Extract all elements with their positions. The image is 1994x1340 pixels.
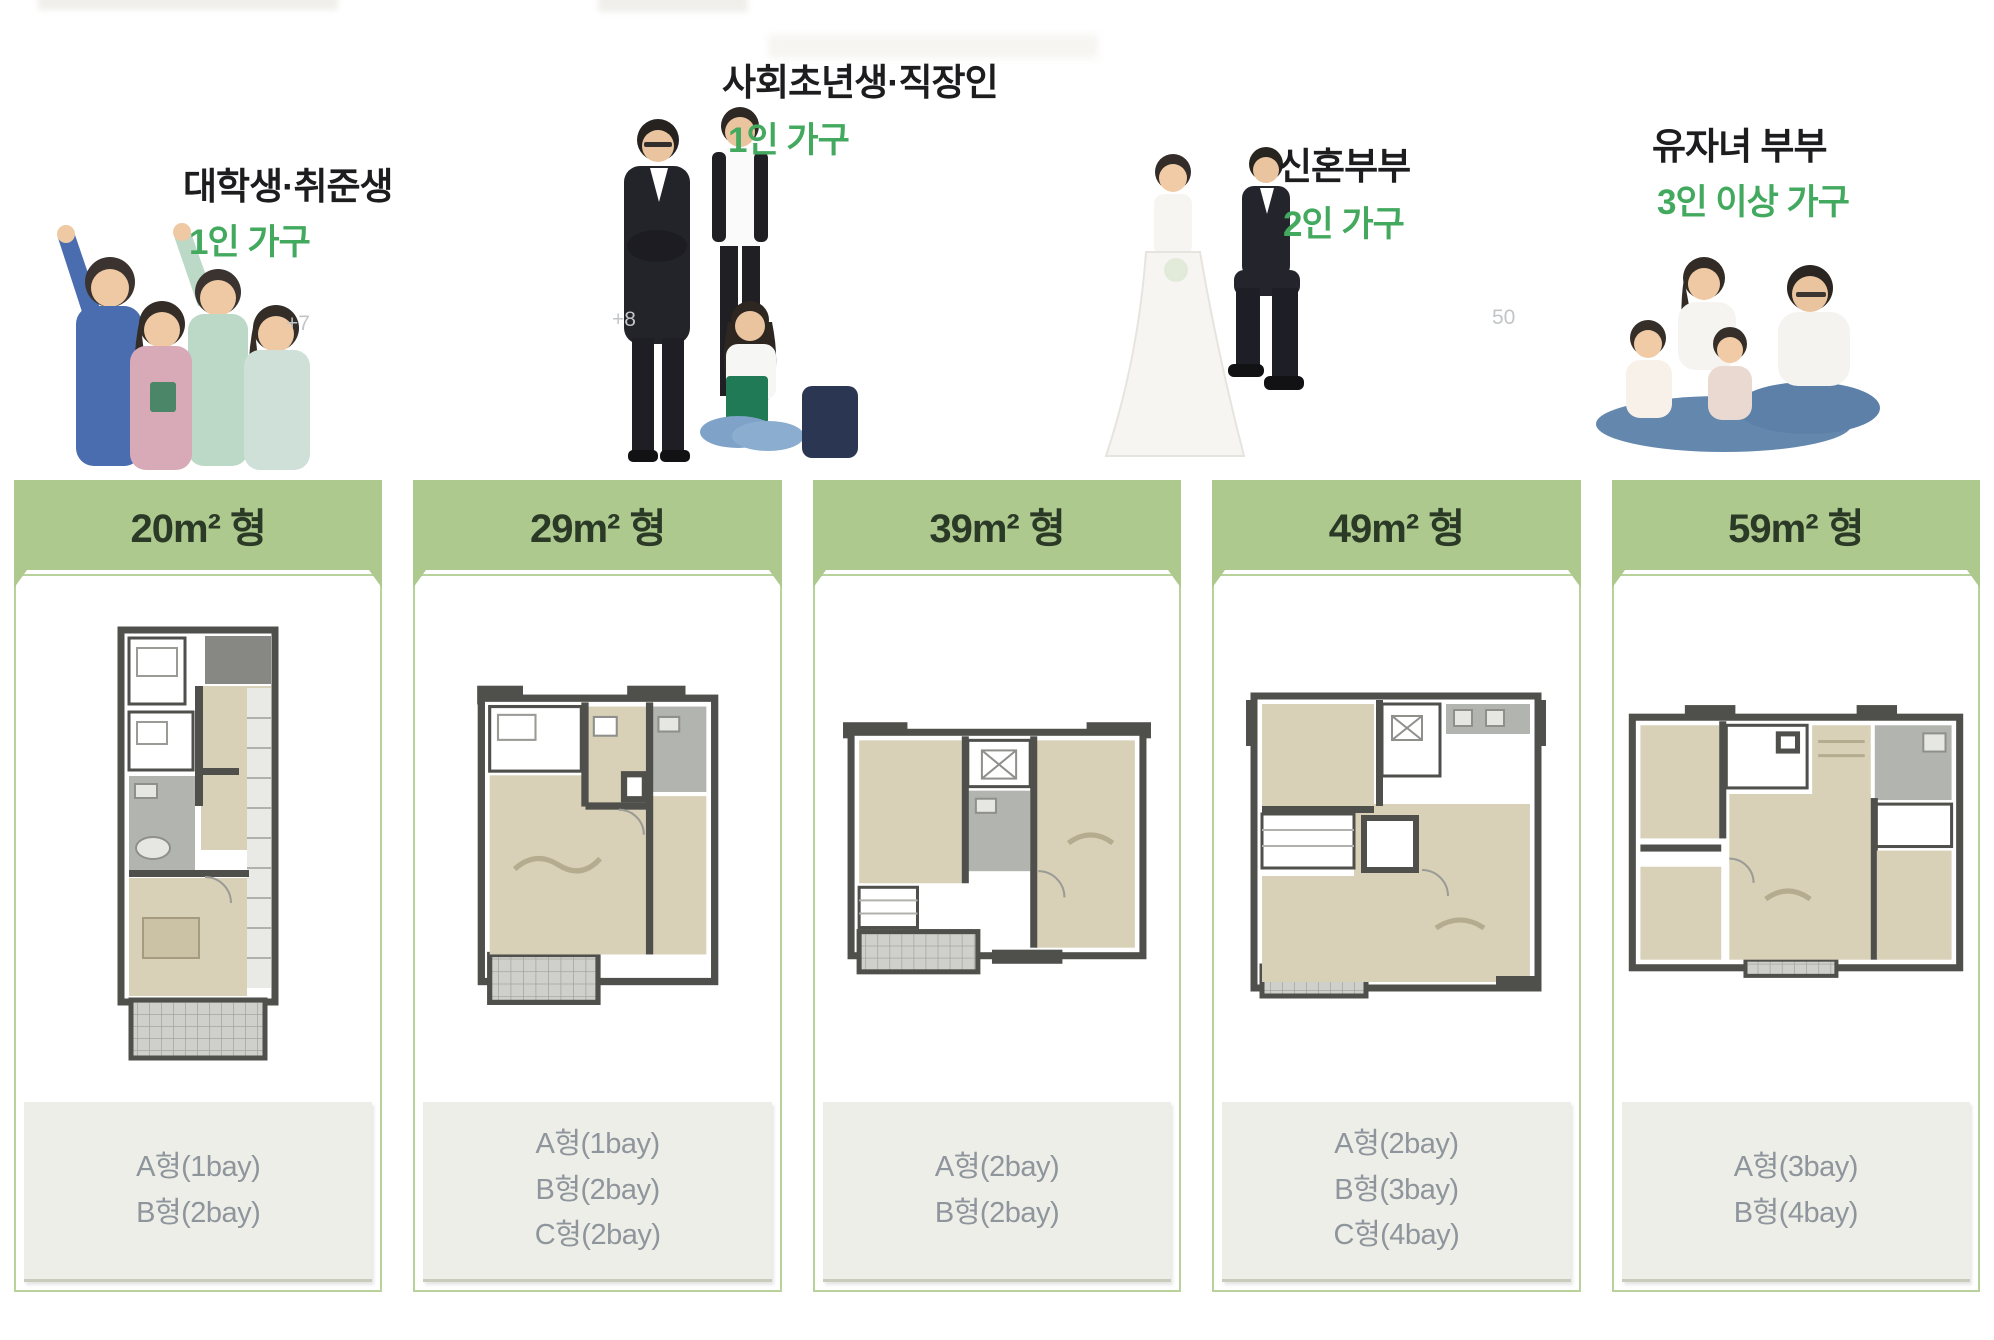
unit-type: B형(4bay)	[1734, 1191, 1858, 1237]
unit-size-label: 49m² 형	[1329, 496, 1464, 554]
unit-type: C형(4bay)	[1334, 1213, 1460, 1259]
family-photo-illustration	[1552, 242, 1892, 457]
unit-size-header: 49m² 형	[1212, 480, 1580, 570]
unit-type-list: A형(1bay) B형(2bay) C형(2bay)	[423, 1102, 771, 1282]
persona-household: 3인 이상 가구	[1657, 174, 1849, 225]
unit-panel: A형(2bay) B형(3bay) C형(4bay)	[1212, 574, 1580, 1292]
unit-size-label: 29m² 형	[530, 496, 665, 554]
unit-size-header: 59m² 형	[1612, 480, 1980, 570]
unit-type: B형(3bay)	[1334, 1168, 1458, 1214]
persona-household: 2인 가구	[1283, 196, 1404, 247]
persona-household: 1인 가구	[728, 112, 849, 163]
floor-plan-drawing	[473, 671, 723, 1015]
persona-name: 대학생·취준생	[183, 156, 393, 210]
unit-type-list: A형(2bay) B형(3bay) C형(4bay)	[1222, 1102, 1570, 1282]
floor-plan-59	[1622, 584, 1970, 1102]
unit-type: A형(2bay)	[935, 1145, 1059, 1191]
floor-plan-20	[24, 584, 372, 1102]
unit-panel: A형(3bay) B형(4bay)	[1612, 574, 1980, 1292]
unit-panel: A형(1bay) B형(2bay) C형(2bay)	[413, 574, 781, 1292]
unit-type: A형(2bay)	[1334, 1122, 1458, 1168]
unit-type: B형(2bay)	[935, 1191, 1059, 1237]
unit-size-header: 39m² 형	[813, 480, 1181, 570]
unit-size-header: 29m² 형	[413, 480, 781, 570]
unit-size-label: 59m² 형	[1728, 496, 1863, 554]
unit-type: A형(1bay)	[136, 1145, 260, 1191]
unit-column-29: 29m² 형	[413, 480, 781, 1292]
unit-type-list: A형(1bay) B형(2bay)	[24, 1102, 372, 1282]
cropped-text-remnant	[38, 0, 338, 10]
unit-type: B형(2bay)	[535, 1168, 659, 1214]
floor-plan-29	[423, 584, 771, 1102]
unit-type-list: A형(2bay) B형(2bay)	[823, 1102, 1171, 1282]
photo-watermark: +8	[612, 308, 636, 332]
unit-column-20: 20m² 형	[14, 480, 382, 1292]
unit-columns: 20m² 형	[0, 480, 1994, 1292]
unit-type: A형(1bay)	[535, 1122, 659, 1168]
infographic-unit-types: 대학생·취준생 1인 가구 +7	[0, 0, 1994, 1340]
photo-watermark: 50	[1492, 306, 1515, 330]
persona-name: 유자녀 부부	[1652, 116, 1826, 170]
unit-size-header: 20m² 형	[14, 480, 382, 570]
unit-size-label: 20m² 형	[131, 496, 266, 554]
unit-type: B형(2bay)	[136, 1191, 260, 1237]
floor-plan-drawing	[841, 692, 1153, 994]
unit-type-list: A형(3bay) B형(4bay)	[1622, 1102, 1970, 1282]
unit-panel: A형(1bay) B형(2bay)	[14, 574, 382, 1292]
persona-household: 1인 가구	[189, 214, 310, 265]
photo-watermark: +7	[286, 312, 310, 336]
floor-plan-drawing	[113, 618, 283, 1068]
unit-type: A형(3bay)	[1734, 1145, 1858, 1191]
unit-type: C형(2bay)	[535, 1213, 661, 1259]
floor-plan-39	[823, 584, 1171, 1102]
floor-plan-49	[1222, 584, 1570, 1102]
floor-plan-drawing	[1624, 697, 1968, 990]
cropped-text-remnant	[598, 0, 748, 12]
unit-size-label: 39m² 형	[929, 496, 1064, 554]
unit-column-39: 39m² 형	[813, 480, 1181, 1292]
unit-panel: A형(2bay) B형(2bay)	[813, 574, 1181, 1292]
persona-name: 사회초년생·직장인	[722, 52, 998, 106]
unit-column-59: 59m² 형	[1612, 480, 1980, 1292]
unit-column-49: 49m² 형	[1212, 480, 1580, 1292]
persona-name: 신혼부부	[1278, 136, 1410, 190]
floor-plan-drawing	[1246, 678, 1546, 1008]
